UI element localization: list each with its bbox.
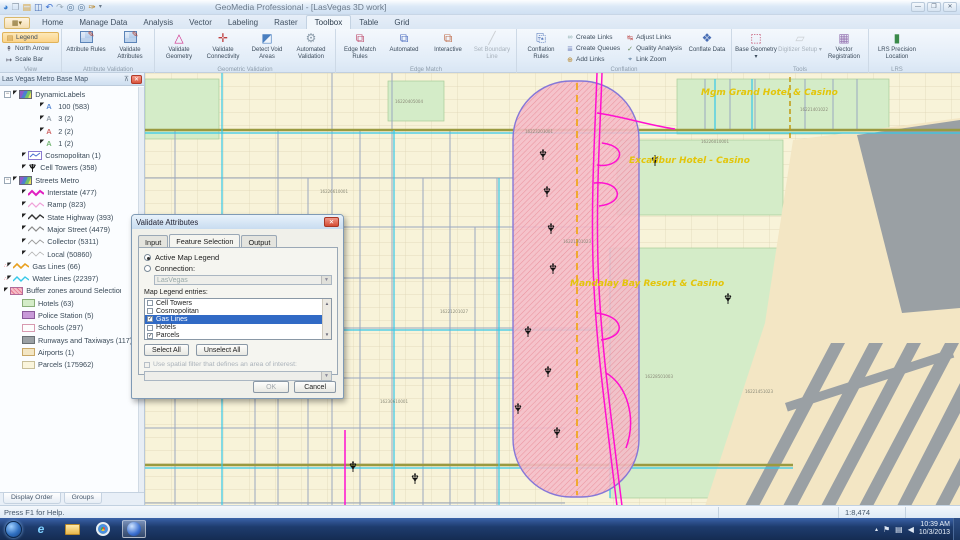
map-scale-value: 1:8,474	[845, 508, 870, 517]
list-item-gas-lines[interactable]: ✓Gas Lines	[145, 315, 331, 323]
list-item-parcels[interactable]: ✓Parcels	[145, 332, 331, 340]
list-item-cell-towers[interactable]: Cell Towers	[145, 299, 331, 307]
map-legend-entries-list[interactable]: Cell Towers Cosmopolitan ✓Gas Lines Hote…	[144, 298, 332, 340]
create-queues-button[interactable]: ≣Create Queues	[563, 43, 623, 54]
validate-attributes-icon	[124, 31, 137, 43]
checkbox-disabled-icon	[144, 362, 150, 368]
vector-registration-icon: ▦	[836, 31, 852, 46]
list-item-cosmopolitan[interactable]: Cosmopolitan	[145, 307, 331, 315]
tray-chevron-icon[interactable]: ▴	[875, 526, 878, 533]
validate-connectivity-button[interactable]: ✛Validate Connectivity	[201, 30, 245, 66]
vector-registration-button[interactable]: ▦Vector Registration	[822, 30, 866, 66]
label-a-red-icon: A	[46, 127, 55, 136]
legend-item-label-2[interactable]: ◤A2 (2)	[0, 125, 138, 137]
label-a-green-icon: A	[46, 139, 55, 148]
list-item-hotels[interactable]: Hotels	[145, 324, 331, 332]
redo-icon[interactable]: ↷	[56, 2, 64, 12]
select-all-button[interactable]: Select All	[144, 344, 189, 356]
locatable-cursor-icon: ◤	[40, 127, 44, 133]
tab-raster[interactable]: Raster	[266, 16, 306, 29]
legend-item-interstate[interactable]: ◤Interstate (477)	[0, 186, 138, 198]
tab-labeling[interactable]: Labeling	[220, 16, 266, 29]
mandalay-bay-label: Mandalay Bay Resort & Casino	[570, 279, 724, 289]
legend-item-label-3[interactable]: ◤A3 (2)	[0, 113, 138, 125]
validate-attributes-dialog: Validate Attributes ✕ Input Feature Sele…	[131, 214, 344, 399]
legend-item-label-100[interactable]: ◤A100 (583)	[0, 100, 138, 112]
pin-icon[interactable]: ⊼	[124, 75, 129, 83]
unselect-all-button[interactable]: Unselect All	[196, 344, 249, 356]
create-queues-icon: ≣	[566, 45, 574, 53]
adjust-links-button[interactable]: ↹Adjust Links	[623, 32, 685, 43]
legend-item-dynamiclabels[interactable]: −◤DynamicLabels	[0, 88, 138, 100]
legend-item-local[interactable]: ◤Local (50860)	[0, 248, 138, 260]
locatable-cursor-icon: ◤	[22, 201, 26, 207]
internet-explorer-icon[interactable]: e	[29, 520, 53, 538]
edit-dots-icon: ∴	[4, 276, 6, 282]
collapse-icon[interactable]: −	[4, 177, 11, 184]
edge-match-automated-button[interactable]: ⧉Automated	[382, 30, 426, 66]
legend-item-airports[interactable]: Airports (1)	[0, 346, 138, 358]
locatable-cursor-icon: ◤	[40, 102, 44, 108]
windows-taskbar: e ▴ ⚑ ▤ ◀ 10:39 AM 10/3/2013	[0, 518, 960, 540]
cosmopolitan-swatch-icon	[28, 151, 42, 160]
locatable-cursor-icon: ◤	[4, 287, 8, 293]
ribbon-group-view: ▤Legend ↟North Arrow ↦Scale Bar View	[0, 29, 62, 73]
system-tray: ▴ ⚑ ▤ ◀ 10:39 AM 10/3/2013	[875, 518, 950, 540]
minimize-button[interactable]: —	[911, 2, 925, 12]
edge-match-automated-icon: ⧉	[396, 31, 412, 46]
tab-toolbox[interactable]: Toolbox	[306, 15, 352, 29]
spatial-filter-combo: ▼	[144, 371, 332, 381]
tab-manage-data[interactable]: Manage Data	[71, 16, 135, 29]
legend-item-schools[interactable]: Schools (297)	[0, 322, 138, 334]
svg-text:16221401022: 16221401022	[800, 107, 828, 112]
radio-unselected-icon	[144, 265, 151, 272]
collector-line-icon	[28, 238, 44, 246]
locatable-cursor-icon: ◤	[22, 152, 26, 158]
legend-panel-title: Las Vegas Metro Base Map	[2, 76, 124, 83]
cancel-button[interactable]: Cancel	[294, 381, 336, 393]
base-geometry-button[interactable]: ⬚Base Geometry ▾	[734, 30, 778, 66]
legend-item-streets-metro[interactable]: −◤Streets Metro	[0, 174, 138, 186]
police-swatch-icon	[22, 311, 35, 319]
svg-text:16221201027: 16221201027	[440, 309, 468, 314]
locatable-cursor-icon: ◤	[22, 225, 26, 231]
validate-connectivity-icon: ✛	[215, 31, 231, 46]
cell-tower-icon	[28, 163, 37, 173]
connection-combo: LasVegas▼	[154, 275, 332, 285]
start-button[interactable]	[5, 521, 22, 538]
status-bar: Press F1 for Help. 1:8,474	[0, 505, 960, 518]
save-icon[interactable]: ◫	[34, 2, 43, 12]
tab-table[interactable]: Table	[351, 16, 386, 29]
legend-item-buffer-zones[interactable]: ◤Buffer zones around Selection of gas li	[0, 285, 138, 297]
legend-item-hotels[interactable]: Hotels (63)	[0, 297, 138, 309]
lrs-precision-location-icon: ▮	[889, 31, 905, 46]
spatial-filter-checkbox: Use spatial filter that defines an area …	[144, 361, 332, 368]
locatable-cursor-icon: ◤	[22, 213, 26, 219]
excalibur-label: Excalibur Hotel - Casino	[629, 156, 750, 166]
new-document-icon[interactable]: ❐	[11, 2, 19, 12]
label-a-blue-icon: A	[46, 102, 55, 111]
legend-panel-tabs: Display Order Groups	[0, 492, 144, 505]
geomedia-window: ◕ ❐ ▤ ◫ ↶ ↷ ◎ ◎ ✑ ▾ GeoMedia Professiona…	[0, 0, 960, 540]
legend-toggle-button[interactable]: ▤Legend	[2, 32, 59, 43]
legend-item-major-street[interactable]: ◤Major Street (4479)	[0, 223, 138, 235]
map-legend-entries-label: Map Legend entries:	[144, 289, 332, 296]
base-geometry-icon: ⬚	[748, 31, 764, 46]
close-button[interactable]: ✕	[943, 2, 957, 12]
tab-vector[interactable]: Vector	[181, 16, 220, 29]
detect-void-areas-icon: ◩	[259, 31, 275, 46]
tab-home[interactable]: Home	[34, 16, 71, 29]
scale-bar-button[interactable]: ↦Scale Bar	[2, 54, 59, 65]
legend-item-water-lines[interactable]: ∴◤Water Lines (22397)	[0, 272, 138, 284]
quality-analysis-button[interactable]: ✓Quality Analysis	[623, 43, 685, 54]
combo-arrow-icon: ▼	[321, 276, 331, 284]
ribbon-group-conflation: ⎘Conflation Rules ∞Create Links ≣Create …	[517, 29, 732, 73]
undo-icon[interactable]: ↶	[46, 2, 54, 12]
locatable-cursor-icon: ◤	[22, 164, 26, 170]
svg-text:16220405004: 16220405004	[395, 99, 423, 104]
radio-selected-icon	[144, 254, 151, 261]
select-tool-icon[interactable]: ✑	[88, 2, 96, 12]
dialog-title-bar[interactable]: Validate Attributes ✕	[132, 215, 343, 229]
digitizer-setup-icon: ▱	[792, 31, 808, 46]
legend-tree: −◤DynamicLabels ◤A100 (583) ◤A3 (2) ◤A2 …	[0, 87, 138, 492]
edge-match-rules-icon: ⧉	[352, 31, 368, 46]
ribbon-group-tools: ⬚Base Geometry ▾ ▱Digitizer Setup ▾ ▦Vec…	[732, 29, 869, 73]
tab-analysis[interactable]: Analysis	[135, 16, 181, 29]
hotels-swatch-icon	[22, 299, 35, 307]
conflation-rules-button[interactable]: ⎘Conflation Rules	[519, 30, 563, 65]
north-arrow-button[interactable]: ↟North Arrow	[2, 43, 59, 54]
lrs-precision-location-button[interactable]: ▮LRS Precision Location	[871, 30, 923, 66]
locatable-cursor-icon: ◤	[22, 189, 26, 195]
validate-geometry-icon: △	[171, 31, 187, 46]
connection-radio[interactable]: Connection:	[144, 263, 332, 274]
zoom-out-icon[interactable]: ◎	[78, 2, 86, 12]
legend-item-cell-towers[interactable]: ◤Cell Towers (358)	[0, 162, 138, 174]
conflation-rules-icon: ⎘	[533, 31, 549, 46]
ok-button: OK	[253, 381, 289, 393]
window-title: GeoMedia Professional - [LasVegas 3D wor…	[215, 2, 387, 12]
gas-line-icon	[13, 262, 29, 270]
interstate-line-icon	[28, 189, 44, 197]
edit-dots-icon: ∴	[4, 263, 6, 269]
locatable-cursor-icon: ◤	[13, 90, 17, 96]
locatable-cursor-icon: ◤	[7, 275, 11, 281]
validate-attributes-button[interactable]: Validate Attributes	[108, 30, 152, 66]
set-boundary-line-icon: ╱	[484, 31, 500, 46]
quick-access-toolbar: ◕ ❐ ▤ ◫ ↶ ↷ ◎ ◎ ✑ ▾	[0, 2, 102, 12]
quality-analysis-icon: ✓	[626, 45, 634, 53]
dynamiclabels-map-icon	[19, 90, 32, 99]
adjust-links-icon: ↹	[626, 34, 634, 42]
application-menu-button[interactable]: ▦▾	[4, 17, 30, 29]
windows-explorer-icon[interactable]	[60, 520, 84, 538]
detect-void-areas-button[interactable]: ◩Detect Void Areas	[245, 30, 289, 66]
set-boundary-line-button: ╱Set Boundary Line	[470, 30, 514, 66]
automated-validation-button[interactable]: ⚙Automated Validation	[289, 30, 333, 66]
svg-text:16221301023: 16221301023	[563, 239, 591, 244]
automated-validation-icon: ⚙	[303, 31, 319, 46]
ribbon-tab-strip: ▦▾ Home Manage Data Analysis Vector Labe…	[0, 15, 960, 29]
clock-time: 10:39 AM	[919, 521, 950, 529]
locatable-cursor-icon: ◤	[22, 238, 26, 244]
ribbon-group-geometric-validation: △Validate Geometry ✛Validate Connectivit…	[155, 29, 336, 73]
north-arrow-icon: ↟	[5, 45, 13, 53]
edge-match-interactive-icon: ⧉	[440, 31, 456, 46]
legend-item-label-1[interactable]: ◤A1 (2)	[0, 137, 138, 149]
svg-text:16223203001: 16223203001	[525, 129, 553, 134]
dialog-title: Validate Attributes	[136, 218, 324, 227]
geomedia-taskbar-icon[interactable]	[122, 520, 146, 538]
conflate-data-icon: ❖	[699, 31, 715, 46]
legend-item-police-station[interactable]: Police Station (5)	[0, 309, 138, 321]
locatable-cursor-icon: ◤	[7, 262, 11, 268]
create-links-button[interactable]: ∞Create Links	[563, 32, 623, 43]
display-order-tab[interactable]: Display Order	[3, 493, 61, 504]
clock-date: 10/3/2013	[919, 529, 950, 537]
legend-item-state-highway[interactable]: ◤State Highway (393)	[0, 211, 138, 223]
scale-bar-icon: ↦	[5, 56, 13, 64]
dialog-tab-feature-selection[interactable]: Feature Selection	[169, 234, 240, 248]
chrome-icon[interactable]	[91, 520, 115, 538]
groups-tab[interactable]: Groups	[64, 493, 102, 504]
gas-buffer-zone	[513, 81, 639, 497]
svg-text:16230610001: 16230610001	[380, 399, 408, 404]
streets-map-icon	[19, 176, 32, 185]
tray-window-icon[interactable]: ▤	[895, 525, 903, 534]
buffer-swatch-icon	[10, 287, 23, 295]
action-center-flag-icon[interactable]: ⚑	[883, 525, 890, 534]
ribbon-group-attribute-validation: Attribute Rules Validate Attributes Attr…	[62, 29, 155, 73]
open-folder-icon[interactable]: ▤	[23, 2, 32, 12]
legend-panel: Las Vegas Metro Base Map ⊼ ✕ −◤DynamicLa…	[0, 73, 145, 505]
digitizer-setup-button: ▱Digitizer Setup ▾	[778, 30, 822, 66]
svg-text:16228501003: 16228501003	[645, 374, 673, 379]
ribbon-group-lrs: ▮LRS Precision Location LRS	[869, 29, 925, 73]
schools-swatch-icon	[22, 324, 35, 332]
show-desktop-button[interactable]	[953, 518, 960, 540]
legend-item-cosmopolitan[interactable]: ◤Cosmopolitan (1)	[0, 149, 138, 161]
app-logo-icon[interactable]: ◕	[3, 2, 8, 12]
legend-item-runways[interactable]: Runways and Taxiways (117)	[0, 334, 138, 346]
feature-selection-page: Active Map Legend Connection: LasVegas▼ …	[138, 247, 338, 375]
status-help-text: Press F1 for Help.	[4, 508, 64, 517]
validate-geometry-button[interactable]: △Validate Geometry	[157, 30, 201, 66]
add-links-button[interactable]: ⊕Add Links	[563, 54, 623, 65]
dialog-close-icon[interactable]: ✕	[324, 217, 339, 227]
mgm-grand-label: Mgm Grand Hotel & Casino	[701, 88, 838, 98]
locatable-cursor-icon: ◤	[40, 139, 44, 145]
title-bar: ◕ ❐ ▤ ◫ ↶ ↷ ◎ ◎ ✑ ▾ GeoMedia Professiona…	[0, 0, 960, 15]
svg-text:16221451023: 16221451023	[745, 389, 773, 394]
ramp-line-icon	[28, 201, 44, 209]
legend-item-parcels[interactable]: Parcels (175962)	[0, 359, 138, 371]
combo-arrow-icon: ▼	[321, 372, 331, 380]
conflate-data-button[interactable]: ❖Conflate Data	[685, 30, 729, 65]
airports-swatch-icon	[22, 348, 35, 356]
legend-close-icon[interactable]: ✕	[131, 75, 142, 84]
attribute-rules-icon	[80, 31, 93, 43]
restore-button[interactable]: ❐	[927, 2, 941, 12]
link-zoom-button[interactable]: ⌖Link Zoom	[623, 54, 685, 65]
locatable-cursor-icon: ◤	[22, 250, 26, 256]
ribbon-group-edge-match: ⧉Edge Match Rules ⧉Automated ⧉Interactiv…	[336, 29, 517, 73]
tab-grid[interactable]: Grid	[386, 16, 417, 29]
parcels-swatch-icon	[22, 361, 35, 369]
edge-match-rules-button[interactable]: ⧉Edge Match Rules	[338, 30, 382, 66]
legend-panel-header: Las Vegas Metro Base Map ⊼ ✕	[0, 73, 144, 86]
locatable-cursor-icon: ◤	[13, 176, 17, 182]
active-map-legend-radio[interactable]: Active Map Legend	[144, 252, 332, 263]
major-street-line-icon	[28, 225, 44, 233]
volume-icon[interactable]: ◀	[908, 525, 914, 534]
list-scrollbar[interactable]: ▲▼	[322, 299, 331, 339]
taskbar-clock[interactable]: 10:39 AM 10/3/2013	[919, 521, 950, 537]
legend-item-gas-lines[interactable]: ∴◤Gas Lines (66)	[0, 260, 138, 272]
ribbon: ▤Legend ↟North Arrow ↦Scale Bar View Att…	[0, 29, 960, 73]
attribute-rules-button[interactable]: Attribute Rules	[64, 30, 108, 66]
state-highway-line-icon	[28, 213, 44, 221]
legend-item-ramp[interactable]: ◤Ramp (823)	[0, 199, 138, 211]
legend-icon: ▤	[6, 34, 14, 42]
svg-text:16226010001: 16226010001	[701, 139, 729, 144]
edge-match-interactive-button[interactable]: ⧉Interactive	[426, 30, 470, 66]
qat-dropdown-icon[interactable]: ▾	[99, 2, 102, 12]
create-links-icon: ∞	[566, 34, 574, 41]
runways-swatch-icon	[22, 336, 35, 344]
collapse-icon[interactable]: −	[4, 91, 11, 98]
legend-item-collector[interactable]: ◤Collector (5311)	[0, 236, 138, 248]
locatable-cursor-icon: ◤	[40, 115, 44, 121]
zoom-in-icon[interactable]: ◎	[67, 2, 75, 12]
svg-text:16226610001: 16226610001	[320, 189, 348, 194]
link-zoom-icon: ⌖	[626, 56, 634, 64]
label-a-gray-icon: A	[46, 114, 55, 123]
local-line-icon	[28, 250, 44, 258]
water-line-icon	[13, 275, 29, 283]
add-links-icon: ⊕	[566, 56, 574, 64]
